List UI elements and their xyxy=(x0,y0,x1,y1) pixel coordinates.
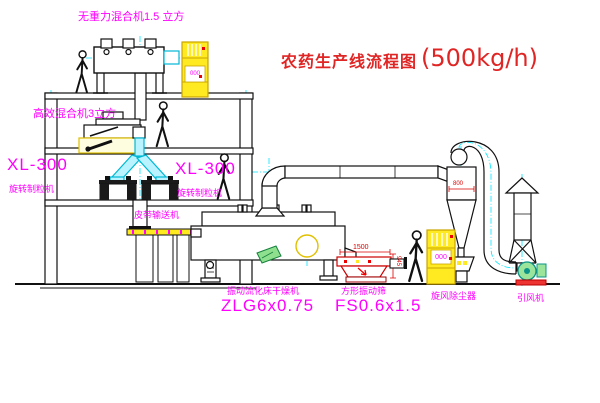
dimension-sieve-length: 1500 xyxy=(353,244,369,251)
label-granulator-mid: 旋转制粒机 xyxy=(177,189,222,198)
title-text: 农药生产线流程图 xyxy=(281,48,417,72)
label-xl300-left: XL-300 xyxy=(7,156,68,173)
dimension-sieve-height: 945 xyxy=(395,256,401,266)
elevator1-panel-text: 000 xyxy=(185,71,205,77)
person-figure xyxy=(157,102,168,146)
dryer-exhaust-duct xyxy=(256,166,449,216)
label-sieve: 方形振动筛 xyxy=(341,287,386,296)
diagram-title: 农药生产线流程图 (500kg/h) xyxy=(281,44,538,72)
belt-conveyor xyxy=(127,229,201,283)
label-gravity-mixer: 无重力混合机1.5 立方 xyxy=(78,12,184,23)
elevator2-panel-text: 000 xyxy=(430,254,452,261)
induced-draft-fan xyxy=(516,262,546,285)
dimension-cyclone: 800 xyxy=(453,181,463,187)
label-cyclone: 旋风除尘器 xyxy=(431,292,476,301)
bucket-elevator-1 xyxy=(182,42,208,97)
label-sieve-model: FS0.6x1.5 xyxy=(335,297,422,314)
label-dryer-model: ZLG6x0.75 xyxy=(221,297,314,314)
label-granulator-left: 旋转制粒机 xyxy=(9,185,54,194)
person-figure xyxy=(76,51,87,92)
label-fan: 引风机 xyxy=(517,294,544,303)
label-high-mixer: 高效混合机3立方 xyxy=(33,109,116,120)
person-figure xyxy=(409,231,422,281)
label-xl300-mid: XL-300 xyxy=(175,160,236,177)
exhaust-stack xyxy=(506,178,538,271)
label-dryer: 振动流化床干燥机 xyxy=(227,287,299,296)
label-belt-conveyor: 皮带输送机 xyxy=(134,211,179,220)
title-capacity: (500kg/h) xyxy=(421,44,538,72)
cad-flow-diagram: 农药生产线流程图 (500kg/h) 无重力混合机1.5 立方 高效混合机3立方… xyxy=(0,0,600,403)
